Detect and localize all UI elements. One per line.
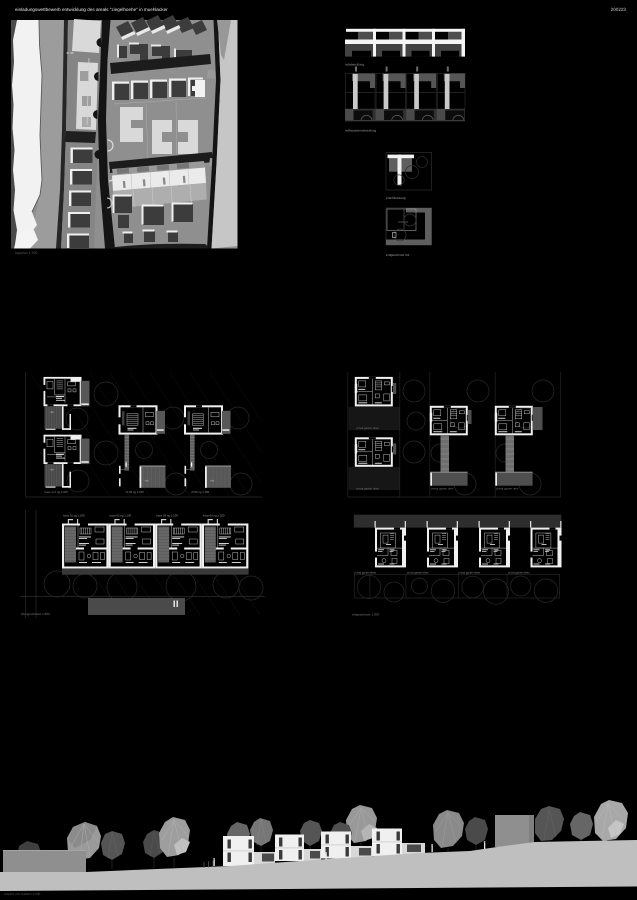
- svg-text:privat garten oben: privat garten oben: [357, 426, 380, 430]
- svg-text:privat garten oben: privat garten oben: [459, 572, 481, 575]
- svg-text:hoffassadenabwicklung: hoffassadenabwicklung: [345, 129, 376, 133]
- svg-text:+0.00 og 1:100: +0.00 og 1:100: [125, 490, 144, 494]
- svg-text:privat garten oben: privat garten oben: [508, 572, 530, 575]
- svg-text:privat garten oben: privat garten oben: [357, 487, 380, 491]
- svg-text:einladungswettbewerb entwicklu: einladungswettbewerb entwicklung des are…: [15, 7, 168, 12]
- svg-text:+0.00 og 1:100: +0.00 og 1:100: [191, 490, 210, 494]
- svg-text:haus 1+2 og 1:100: haus 1+2 og 1:100: [45, 490, 69, 494]
- svg-text:lageplan 1:500: lageplan 1:500: [15, 251, 37, 255]
- svg-text:ansicht von sueden 1:200: ansicht von sueden 1:200: [4, 892, 41, 896]
- svg-text:haus 04 og 1:100: haus 04 og 1:100: [203, 514, 225, 518]
- svg-text:200223: 200223: [611, 7, 627, 12]
- svg-text:haus 02 og 1:100: haus 02 og 1:100: [110, 514, 132, 518]
- svg-text:erschliessung: erschliessung: [386, 196, 406, 200]
- svg-text:privat garten oben: privat garten oben: [407, 572, 429, 575]
- svg-text:haus 01 og 1:100: haus 01 og 1:100: [63, 514, 85, 518]
- svg-text:privat garten uten: privat garten uten: [432, 487, 454, 491]
- svg-text:privat garten oben: privat garten oben: [355, 572, 377, 575]
- svg-text:obergeschosse 1:200: obergeschosse 1:200: [21, 612, 50, 616]
- svg-text:hofabwicklung: hofabwicklung: [345, 63, 364, 67]
- svg-text:haus 03 og 1:100: haus 03 og 1:100: [156, 514, 178, 518]
- svg-text:erdgeschosse 1:200: erdgeschosse 1:200: [352, 613, 379, 617]
- svg-text:privat garten uten: privat garten uten: [497, 487, 519, 491]
- svg-text:erdgeschoss hof: erdgeschoss hof: [386, 253, 410, 257]
